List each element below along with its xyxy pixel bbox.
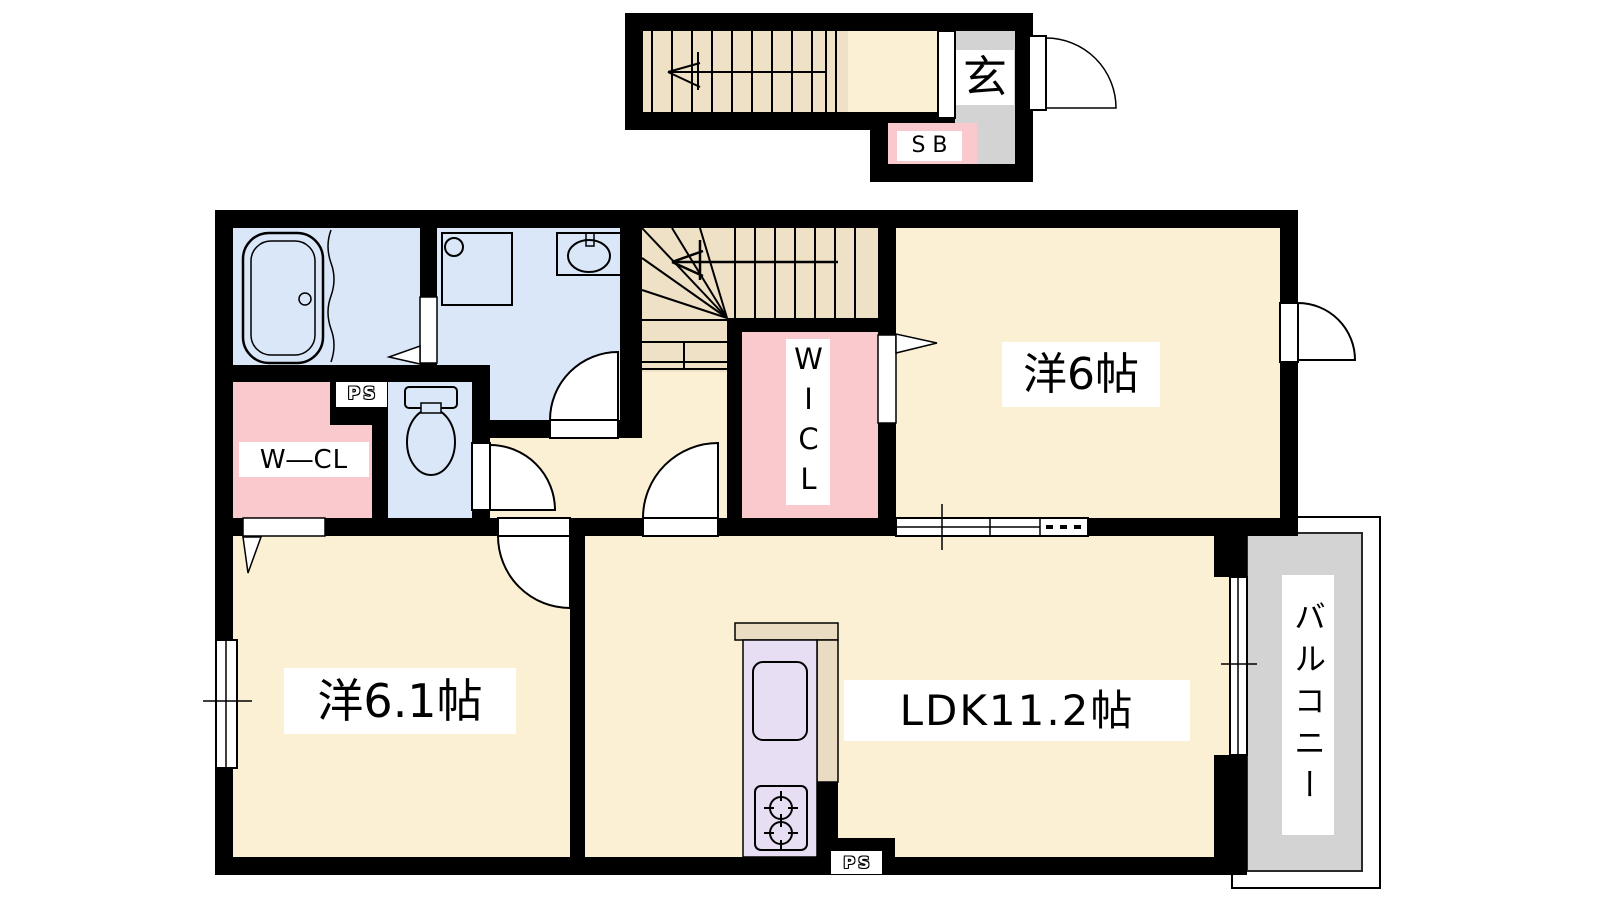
ldk-label: LDK11.2帖 (844, 680, 1190, 741)
wcl-label: W―CL (239, 442, 369, 477)
wicl-label: WICL (786, 339, 830, 505)
western-room-6-1-label: 洋6.1帖 (284, 668, 516, 734)
ldk-floor-window-patch (1214, 577, 1231, 755)
kitchen-counter-top (735, 623, 838, 640)
entrance-door (1029, 36, 1116, 110)
floor-plan: 玄 SB PS W―CL WICL 洋6帖 洋6.1帖 LDK11.2帖 バルコ… (0, 0, 1600, 900)
pipe-space-upper-label: PS (336, 382, 387, 407)
shoe-box-label: SB (897, 131, 962, 161)
entry-step (938, 31, 955, 118)
western-room-6-door (1280, 303, 1355, 362)
western-room-6-label: 洋6帖 (1002, 342, 1160, 407)
balcony-label: バルコニー (1282, 575, 1334, 835)
bathroom-floor (233, 228, 420, 365)
entrance-block (625, 13, 1116, 182)
entry-hall-floor (848, 31, 938, 112)
pipe-space-lower-label: PS (831, 851, 882, 874)
hallway-floor-a (642, 372, 727, 438)
entrance-label: 玄 (956, 50, 1014, 105)
kitchen-counter-right (817, 640, 838, 782)
kitchen-unit (735, 623, 838, 857)
